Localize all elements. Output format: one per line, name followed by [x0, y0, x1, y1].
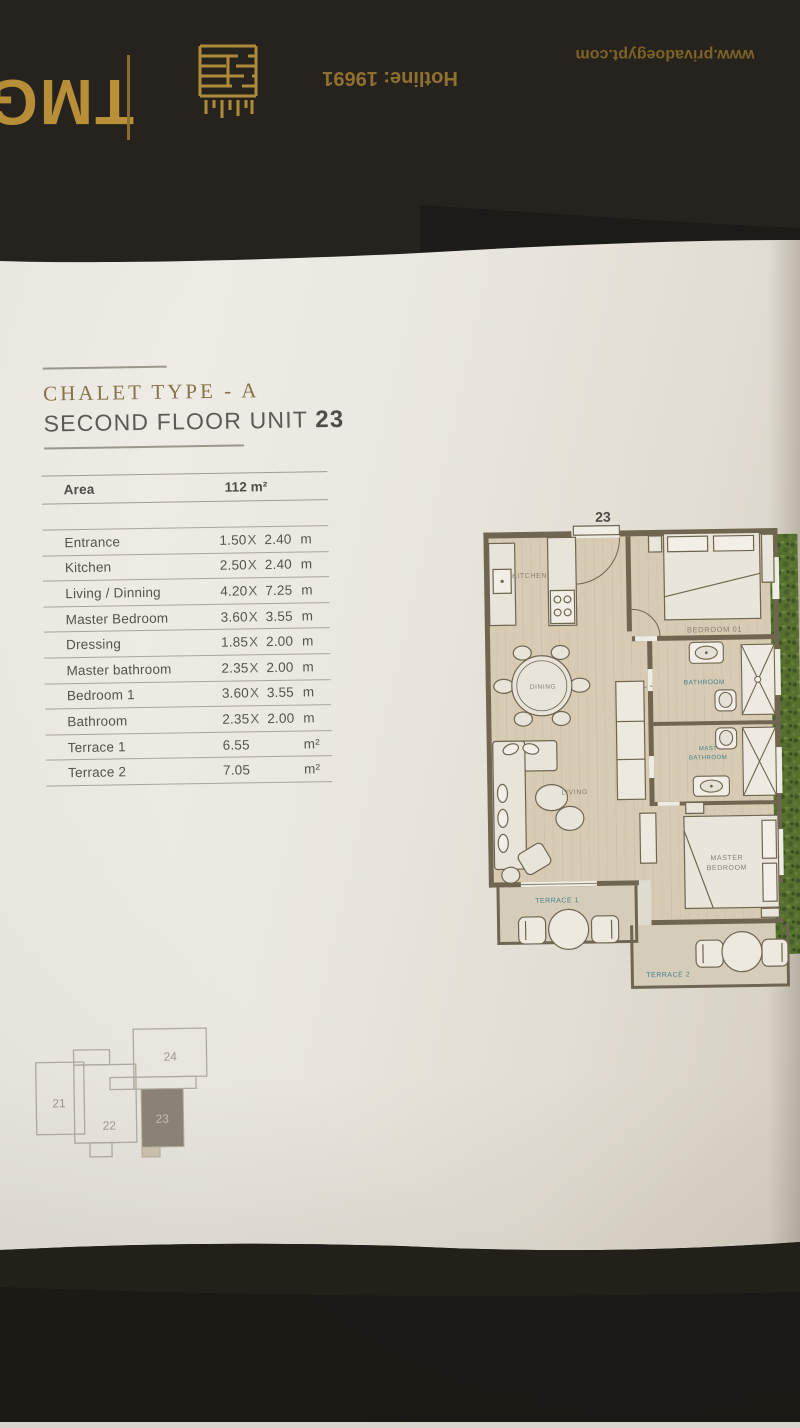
dimension-height: 7.25	[265, 583, 301, 599]
header-area-unit: m²	[251, 478, 328, 494]
master-bathroom-label-1: MAST	[699, 746, 718, 752]
dimension-separator: X	[247, 532, 264, 547]
dimension-width: 1.85	[221, 635, 249, 650]
header-area-label: Area	[42, 480, 225, 498]
key-plan: 21 22 23 24	[33, 1018, 220, 1171]
title-block: CHALET TYPE - A SECOND FLOOR UNIT 23	[43, 363, 345, 450]
dimension-unit: m²	[304, 736, 332, 751]
dimension-unit: m	[302, 608, 330, 623]
room-name: Entrance	[42, 533, 219, 551]
bathroom-label: BATHROOM	[684, 679, 725, 687]
hotline-text: Hotline: 19691	[322, 67, 458, 89]
dimension-separator: X	[248, 583, 265, 598]
dimension-separator: X	[249, 660, 266, 675]
key-plan-unit-23-terrace	[142, 1147, 160, 1157]
page-title: CHALET TYPE - A	[43, 377, 344, 407]
dimension-width: 2.35	[222, 711, 250, 726]
dining-label: DINING	[530, 684, 556, 691]
bedroom1-furniture	[648, 532, 774, 620]
dimension-width: 4.20	[220, 583, 248, 598]
dimension-width: 3.60	[222, 686, 250, 701]
dimension-separator: X	[248, 557, 265, 572]
dimension-unit: m	[300, 531, 328, 546]
room-name: Master Bedroom	[44, 609, 221, 627]
kitchen-label: KITCHEN	[512, 573, 547, 581]
dimension-width: 7.05	[223, 762, 251, 777]
brochure-back-cover: TMG Hotline: 19691 www.privadoegypt.com	[0, 0, 800, 270]
key-plan-unit-24: 24	[163, 1050, 177, 1064]
room-name: Terrace 1	[46, 737, 223, 755]
logo-divider	[127, 55, 130, 140]
room-name: Bathroom	[45, 712, 222, 730]
terrace2-label: TERRACE 2	[646, 971, 690, 979]
page-subtitle: SECOND FLOOR UNIT 23	[43, 406, 344, 439]
room-name: Dressing	[44, 635, 221, 653]
dimension-unit: m	[303, 710, 331, 725]
master-bedroom-label-1: MASTER	[710, 855, 743, 863]
dimension-height: 3.55	[266, 608, 302, 624]
dimension-height	[268, 769, 304, 770]
dimension-height	[268, 744, 304, 745]
room-name: Bedroom 1	[45, 686, 222, 704]
dimension-height: 2.40	[264, 531, 300, 547]
subtitle-text: SECOND FLOOR UNIT	[43, 406, 307, 436]
dimension-separator: X	[249, 609, 266, 624]
dimension-separator: X	[249, 634, 266, 649]
dimension-separator: X	[250, 685, 267, 700]
dimension-unit: m²	[304, 761, 332, 776]
dimension-unit: m	[302, 633, 330, 648]
table-row: Terrace 2 7.05 m²	[46, 756, 332, 786]
title-rule-top	[43, 366, 167, 370]
key-plan-unit-23: 23	[155, 1112, 169, 1126]
header-area-value: 112	[225, 479, 251, 494]
master-bedroom-label-2: BEDROOM	[707, 865, 747, 873]
key-plan-unit-21: 21	[52, 1096, 66, 1110]
room-name: Kitchen	[43, 558, 220, 576]
dimension-width: 6.55	[223, 737, 251, 752]
dimension-unit: m	[301, 556, 329, 571]
master-bathroom-label-2: BATHROOM	[689, 755, 727, 762]
dimension-unit: m	[303, 684, 331, 699]
unit-number: 23	[315, 406, 345, 433]
dimension-height: 2.40	[265, 557, 301, 573]
dimension-height: 2.00	[267, 710, 303, 726]
area-table-rows: Entrance 1.50 X 2.40 m Kitchen 2.50 X 2.…	[42, 526, 332, 786]
area-table: Area 112 m² Entrance 1.50 X 2.40 m Kitch…	[41, 471, 332, 786]
dimension-unit: m	[302, 659, 330, 674]
dimension-width: 2.35	[221, 660, 249, 675]
living-label: LIVING	[561, 789, 588, 796]
floor-plan: 23	[467, 499, 800, 1009]
area-table-header: Area 112 m²	[41, 471, 327, 504]
dimension-height: 2.00	[266, 634, 302, 650]
room-name: Terrace 2	[46, 763, 223, 781]
dimension-width: 1.50	[219, 532, 247, 547]
dimension-unit: m	[301, 582, 329, 597]
tmg-wordmark: TMG	[0, 66, 134, 138]
website-text: www.privadoegypt.com	[576, 46, 756, 63]
room-name: Living / Dinning	[43, 584, 220, 602]
table-surface-below-page	[0, 1232, 800, 1422]
dimension-height: 3.55	[267, 685, 303, 701]
bedroom1-label: BEDROOM 01	[687, 625, 742, 635]
plan-unit-number: 23	[595, 509, 611, 525]
dimension-width: 3.60	[221, 609, 249, 624]
room-name: Master bathroom	[44, 661, 221, 679]
title-rule-bottom	[44, 444, 244, 449]
dimension-height: 2.00	[266, 659, 302, 675]
key-plan-unit-22: 22	[103, 1119, 117, 1133]
dimension-width: 2.50	[220, 558, 248, 573]
terrace1-label: TERRACE 1	[535, 897, 579, 905]
dimension-separator: X	[250, 711, 267, 726]
